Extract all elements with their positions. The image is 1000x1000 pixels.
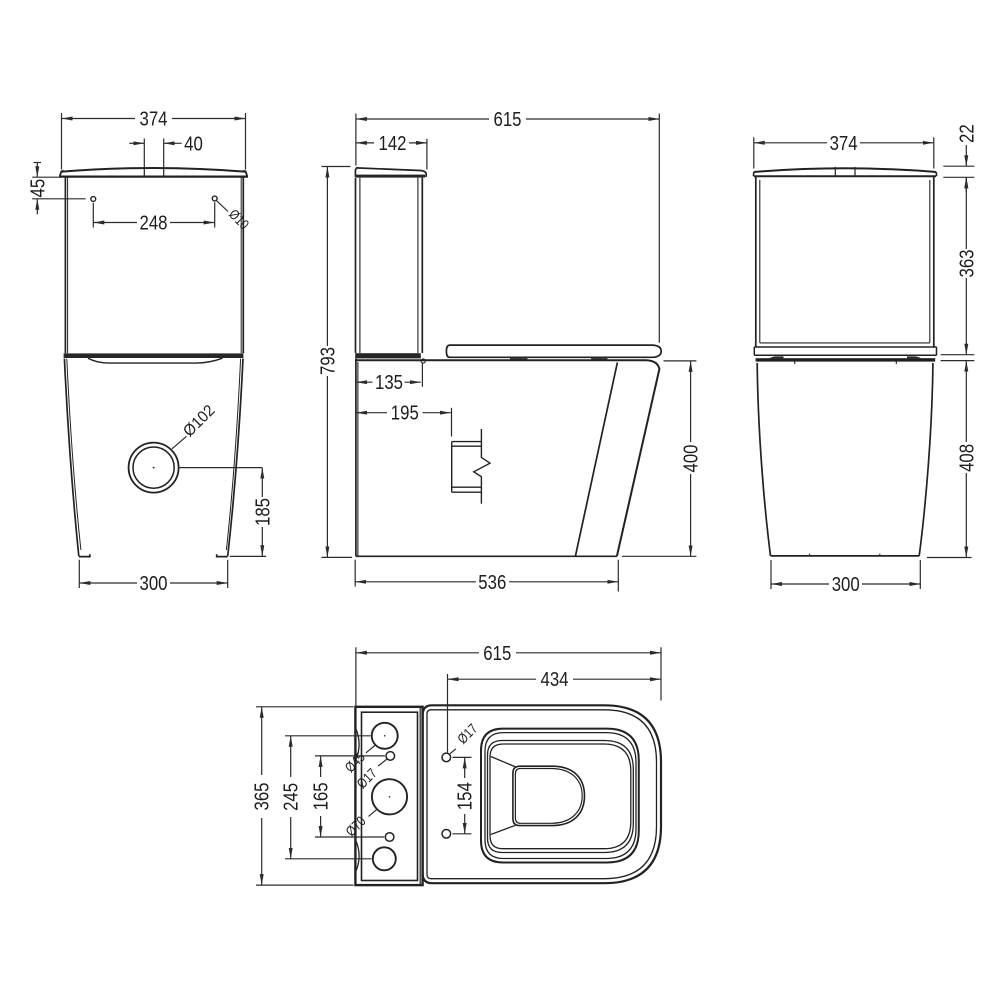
svg-text:400: 400 xyxy=(681,445,703,473)
svg-text:300: 300 xyxy=(140,573,168,595)
svg-text:536: 536 xyxy=(478,572,506,594)
svg-text:615: 615 xyxy=(483,643,511,665)
svg-text:245: 245 xyxy=(281,783,303,811)
svg-text:185: 185 xyxy=(252,498,274,526)
svg-text:154: 154 xyxy=(455,782,477,810)
svg-text:408: 408 xyxy=(956,444,978,472)
svg-text:793: 793 xyxy=(317,347,339,375)
svg-text:363: 363 xyxy=(956,250,978,278)
svg-text:374: 374 xyxy=(140,109,168,131)
svg-text:434: 434 xyxy=(541,669,569,691)
svg-text:365: 365 xyxy=(252,783,274,811)
svg-text:40: 40 xyxy=(184,133,203,155)
svg-text:195: 195 xyxy=(391,403,419,425)
svg-text:615: 615 xyxy=(494,109,522,131)
svg-text:248: 248 xyxy=(140,213,168,235)
svg-text:300: 300 xyxy=(832,574,860,596)
svg-text:45: 45 xyxy=(27,179,49,198)
svg-text:22: 22 xyxy=(956,124,978,143)
svg-text:142: 142 xyxy=(379,133,407,155)
svg-text:374: 374 xyxy=(830,133,858,155)
svg-text:135: 135 xyxy=(375,372,403,394)
svg-text:165: 165 xyxy=(311,782,333,810)
